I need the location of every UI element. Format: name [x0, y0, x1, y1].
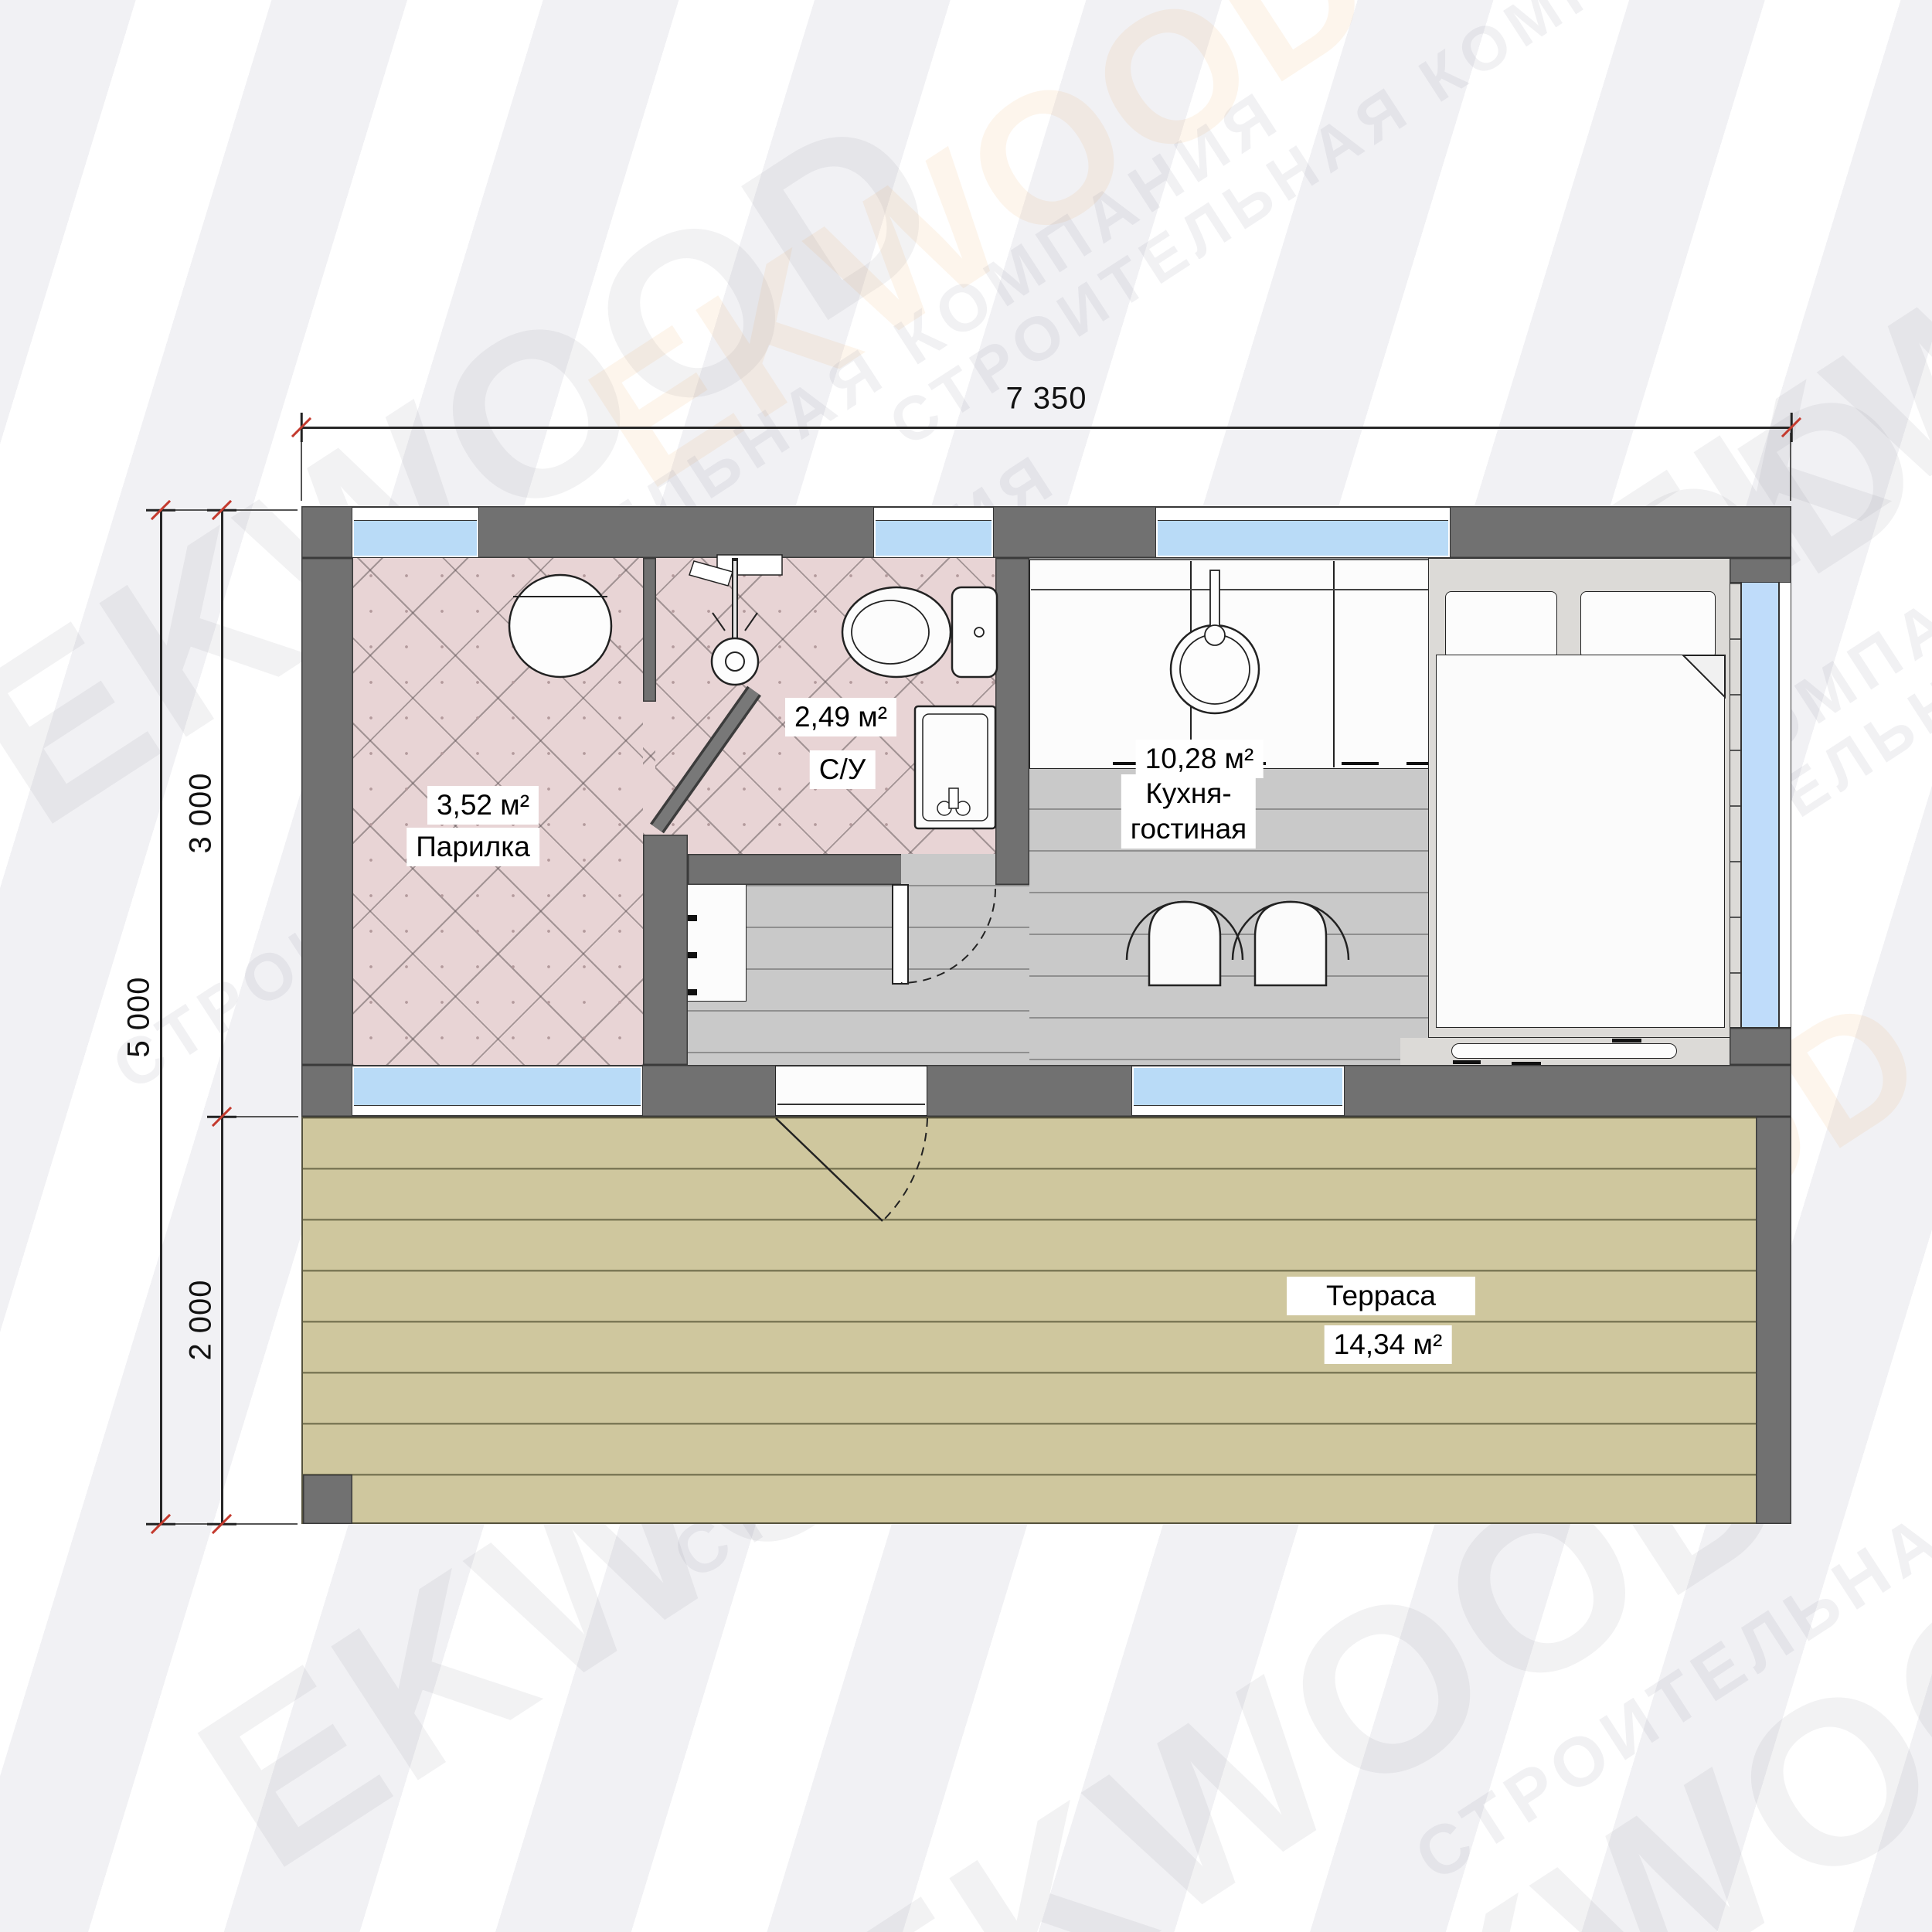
sauna-area-label: 3,52 м²	[427, 786, 539, 825]
fixtures-layer	[0, 0, 1932, 1932]
sauna-heater-icon	[509, 575, 611, 677]
chair-icon	[1233, 902, 1349, 985]
bed-blanket-fold	[1683, 655, 1725, 697]
bathroom-area-label: 2,49 м²	[785, 698, 896, 736]
bathroom-door	[893, 885, 995, 984]
sauna-door-leaf	[657, 691, 754, 828]
dimension-depth-total-value: 5 000	[122, 976, 157, 1057]
kitchen-name-line2: гостиная	[1131, 813, 1247, 845]
kitchen-name-line1: Кухня-	[1145, 777, 1231, 809]
dimension-line-depth-split	[221, 510, 223, 1524]
dimension-width-value: 7 350	[1005, 382, 1087, 417]
bathroom-name-label: С/У	[810, 750, 876, 789]
terrace-name-label: Терраса	[1287, 1277, 1475, 1315]
terrace-area-label: 14,34 м²	[1325, 1325, 1452, 1364]
washbasin-icon	[915, 706, 995, 828]
floorplan-canvas: EKWOOD EKWOOD EKWOOD EKWOOD EKWOOD EKWOO…	[0, 0, 1932, 1932]
kitchen-area-label: 10,28 м²	[1136, 740, 1264, 778]
shower-icon	[689, 555, 782, 685]
kitchen-sink-icon	[1171, 570, 1259, 713]
entrance-door	[776, 1118, 927, 1221]
kitchen-name-label: Кухня- гостиная	[1121, 774, 1256, 849]
dimension-line-depth-total	[160, 510, 162, 1524]
dimension-house-depth-value: 3 000	[184, 772, 219, 853]
toilet-icon	[842, 587, 997, 677]
dimension-line-width	[301, 427, 1791, 429]
dimension-terrace-depth-value: 2 000	[184, 1279, 219, 1360]
extension-line	[301, 433, 302, 501]
extension-line	[1790, 433, 1791, 501]
chair-icon	[1127, 902, 1243, 985]
sauna-name-label: Парилка	[406, 828, 539, 866]
